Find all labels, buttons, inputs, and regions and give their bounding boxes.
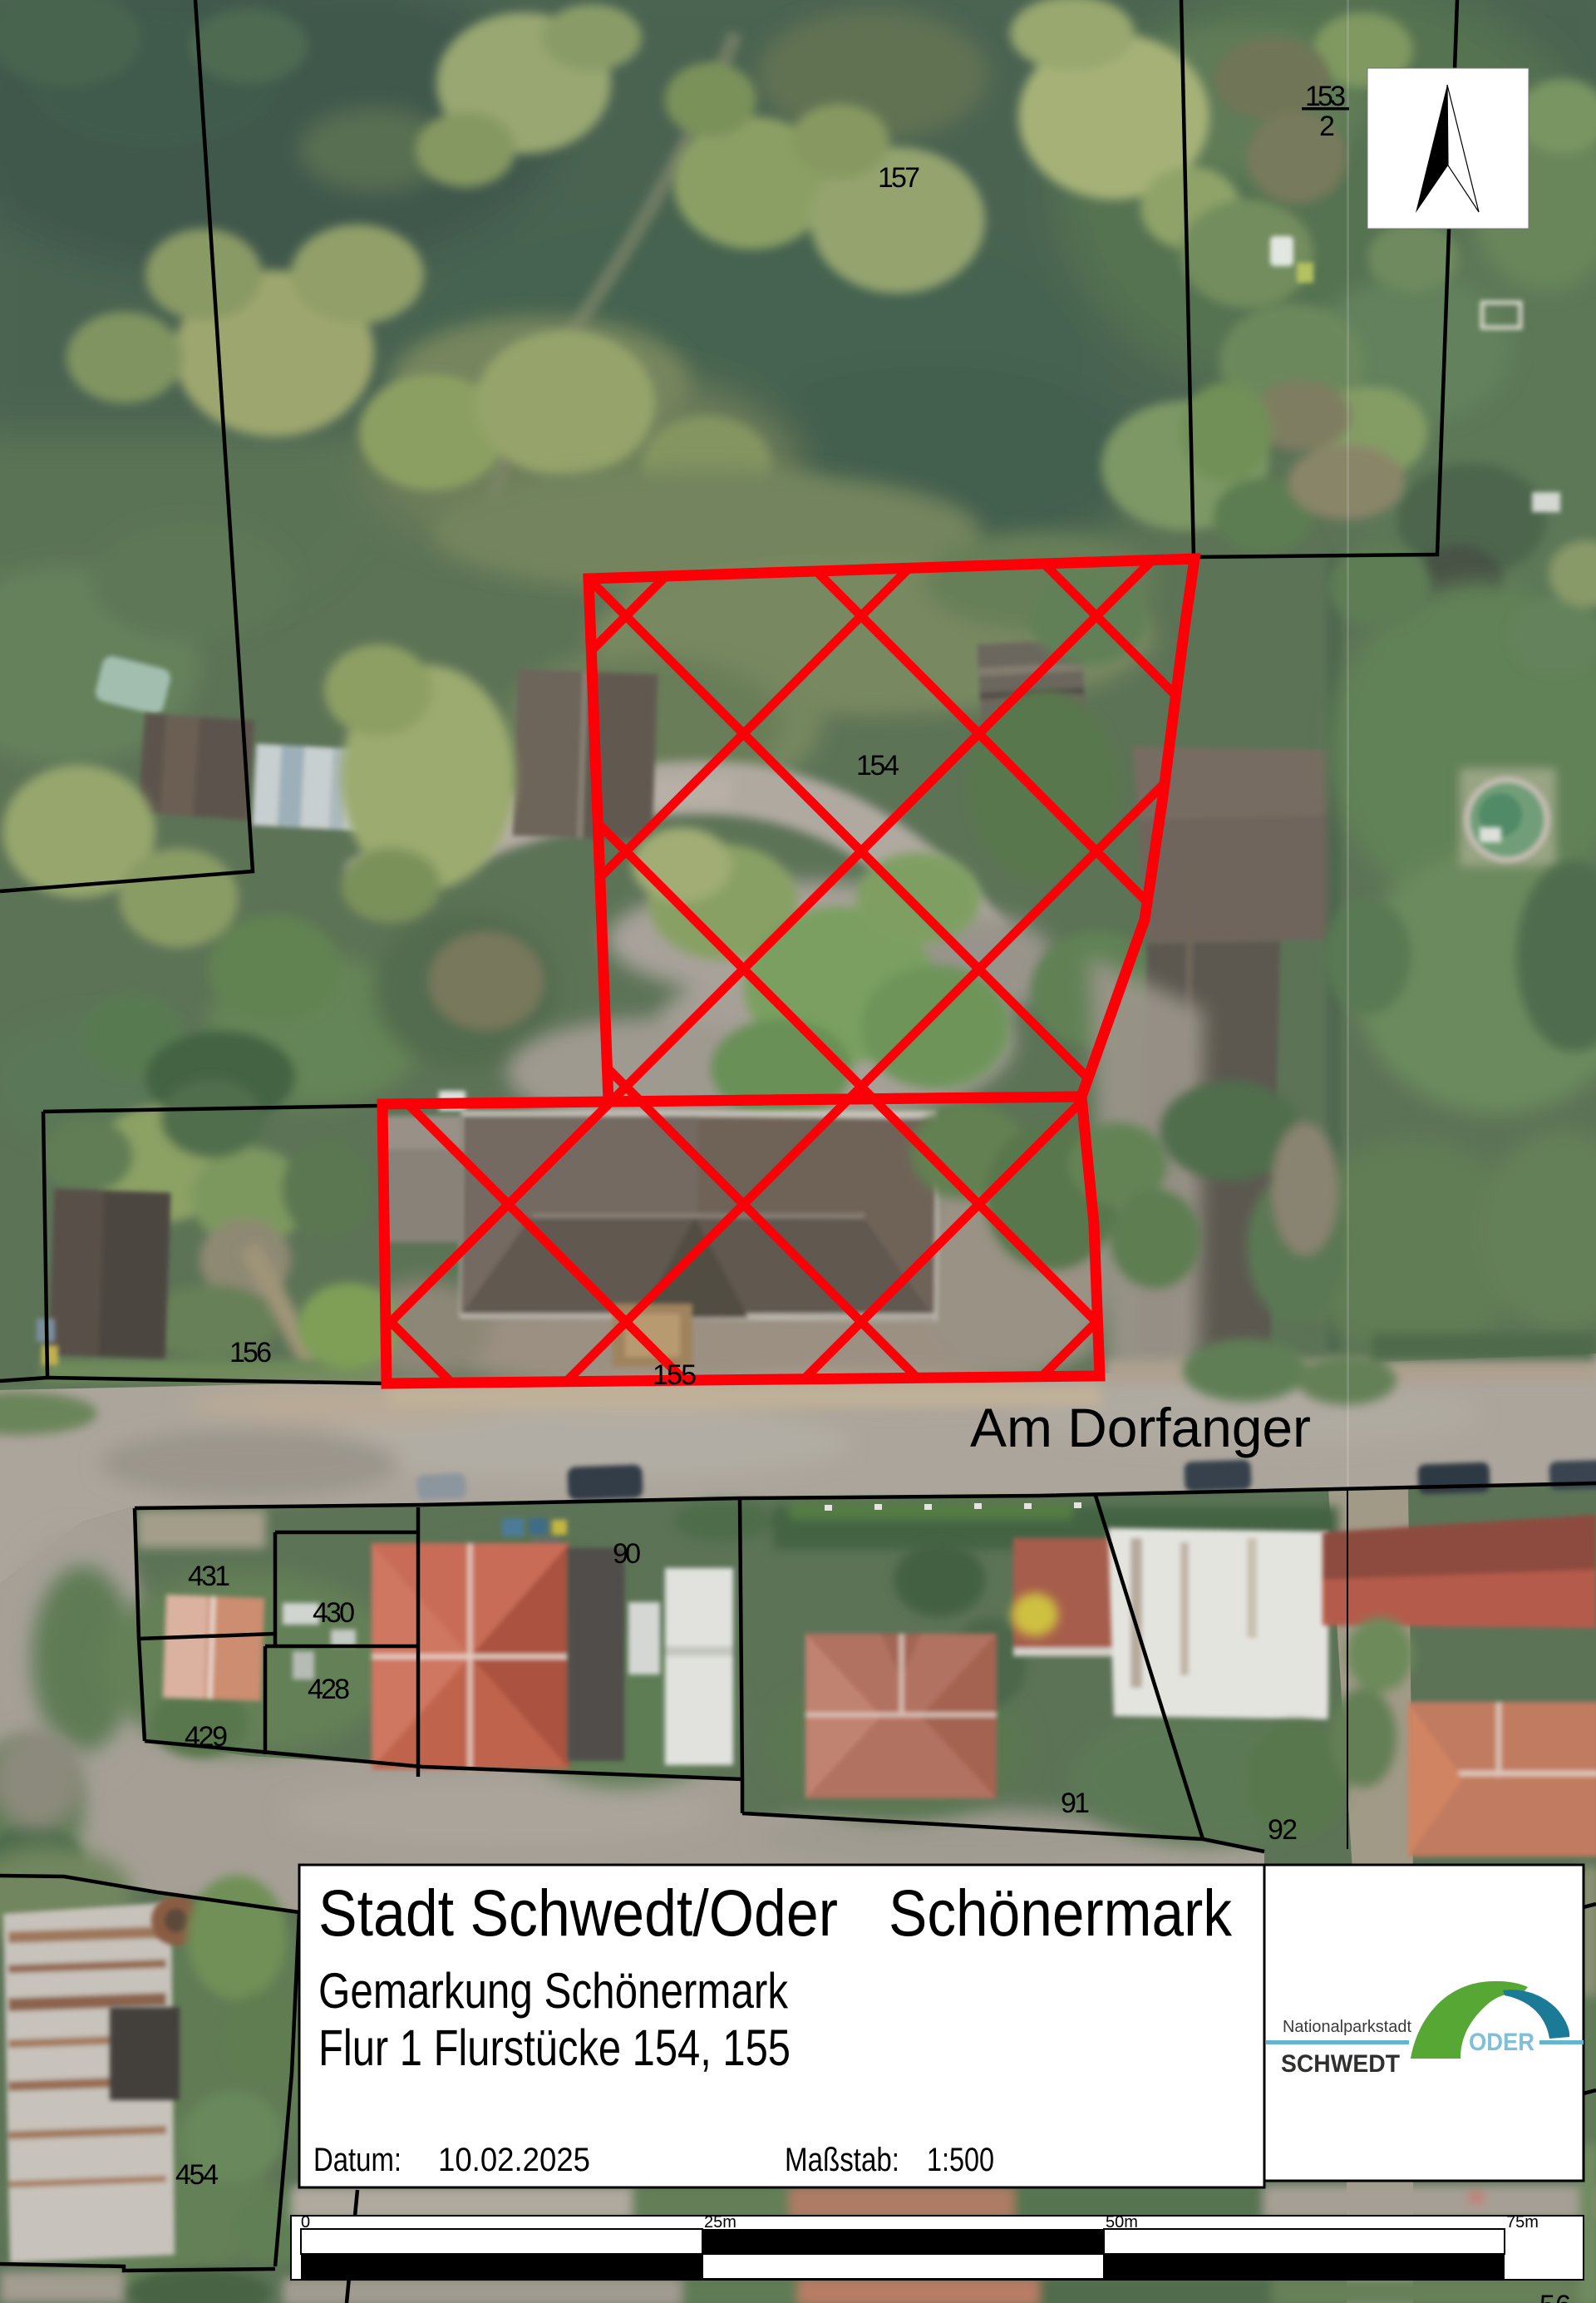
svg-text:92: 92	[1268, 1814, 1298, 1846]
svg-text:154: 154	[856, 750, 899, 782]
svg-text:155: 155	[653, 1359, 697, 1391]
svg-text:156: 156	[229, 1337, 272, 1368]
svg-text:0: 0	[301, 2213, 310, 2231]
svg-text:Schönermark: Schönermark	[889, 1876, 1232, 1950]
svg-text:Stadt Schwedt/Oder: Stadt Schwedt/Oder	[318, 1876, 838, 1950]
svg-text:2: 2	[1319, 111, 1335, 142]
svg-text:Maßstab:: Maßstab:	[785, 2142, 899, 2178]
svg-text:454: 454	[175, 2159, 219, 2191]
svg-text:ODER: ODER	[1469, 2029, 1534, 2056]
svg-text:10.02.2025: 10.02.2025	[438, 2142, 590, 2178]
svg-text:25m: 25m	[704, 2213, 736, 2231]
svg-text:91: 91	[1061, 1788, 1090, 1819]
svg-text:431: 431	[188, 1561, 230, 1592]
svg-text:75m: 75m	[1506, 2213, 1539, 2231]
svg-text:Datum:: Datum:	[313, 2142, 401, 2178]
svg-text:430: 430	[313, 1597, 355, 1629]
svg-text:SCHWEDT: SCHWEDT	[1281, 2050, 1400, 2078]
svg-text:428: 428	[308, 1674, 350, 1705]
svg-text:157: 157	[878, 162, 920, 194]
svg-text:56: 56	[1539, 2290, 1571, 2303]
svg-text:Am Dorfanger: Am Dorfanger	[970, 1397, 1311, 1458]
svg-text:Gemarkung Schönermark: Gemarkung Schönermark	[318, 1963, 789, 2019]
svg-text:Nationalparkstadt: Nationalparkstadt	[1283, 2018, 1411, 2036]
svg-text:429: 429	[185, 1721, 228, 1753]
svg-text:90: 90	[613, 1538, 641, 1570]
svg-text:Flur 1 Flurstücke 154, 155: Flur 1 Flurstücke 154, 155	[318, 2019, 791, 2076]
svg-text:50m: 50m	[1106, 2213, 1138, 2231]
svg-text:1:500: 1:500	[927, 2142, 994, 2178]
